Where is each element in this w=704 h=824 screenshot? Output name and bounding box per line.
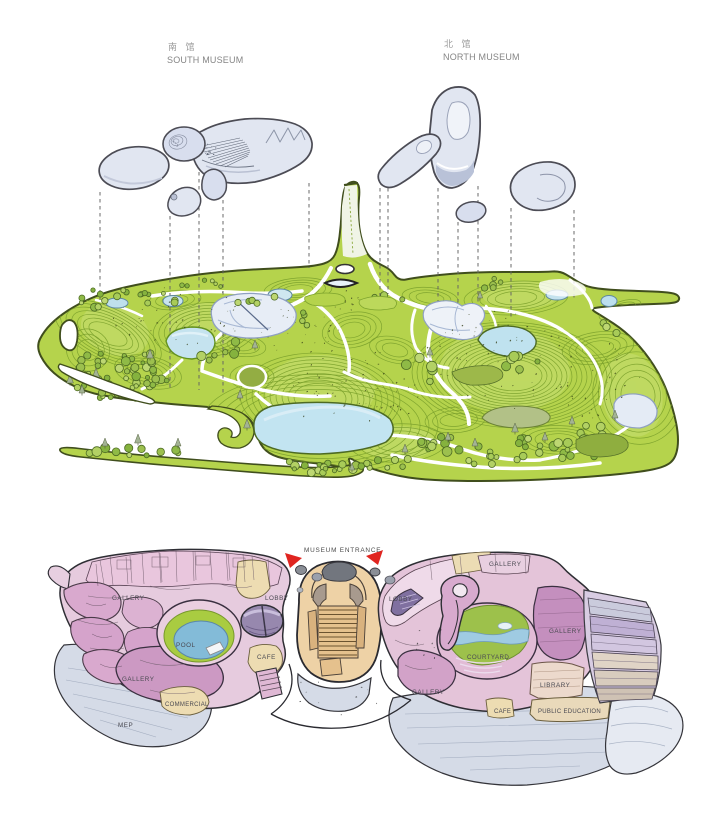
svg-text:北 馆: 北 馆	[444, 38, 474, 49]
svg-text:GALLERY: GALLERY	[412, 689, 445, 696]
svg-text:GALLERY: GALLERY	[122, 676, 155, 683]
svg-text:MEP: MEP	[118, 722, 133, 729]
svg-text:POOL: POOL	[176, 642, 196, 649]
svg-text:SOUTH MUSEUM: SOUTH MUSEUM	[167, 55, 243, 65]
svg-text:GALLERY: GALLERY	[489, 561, 522, 568]
svg-text:GALLERY: GALLERY	[112, 595, 145, 602]
svg-text:LOBBY: LOBBY	[265, 595, 289, 602]
svg-text:LOBBY: LOBBY	[389, 596, 413, 603]
svg-text:COURTYARD: COURTYARD	[467, 654, 509, 661]
svg-text:COMMERCIAL: COMMERCIAL	[165, 702, 209, 708]
svg-text:GALLERY: GALLERY	[549, 628, 582, 635]
svg-text:MUSEUM ENTRANCE: MUSEUM ENTRANCE	[304, 547, 381, 554]
svg-text:NORTH MUSEUM: NORTH MUSEUM	[443, 52, 520, 62]
svg-text:PUBLIC EDUCATION: PUBLIC EDUCATION	[538, 709, 601, 715]
svg-text:CAFE: CAFE	[494, 709, 511, 715]
svg-text:CAFE: CAFE	[257, 654, 276, 661]
svg-text:南 馆: 南 馆	[168, 41, 198, 52]
svg-text:LIBRARY: LIBRARY	[540, 682, 571, 689]
